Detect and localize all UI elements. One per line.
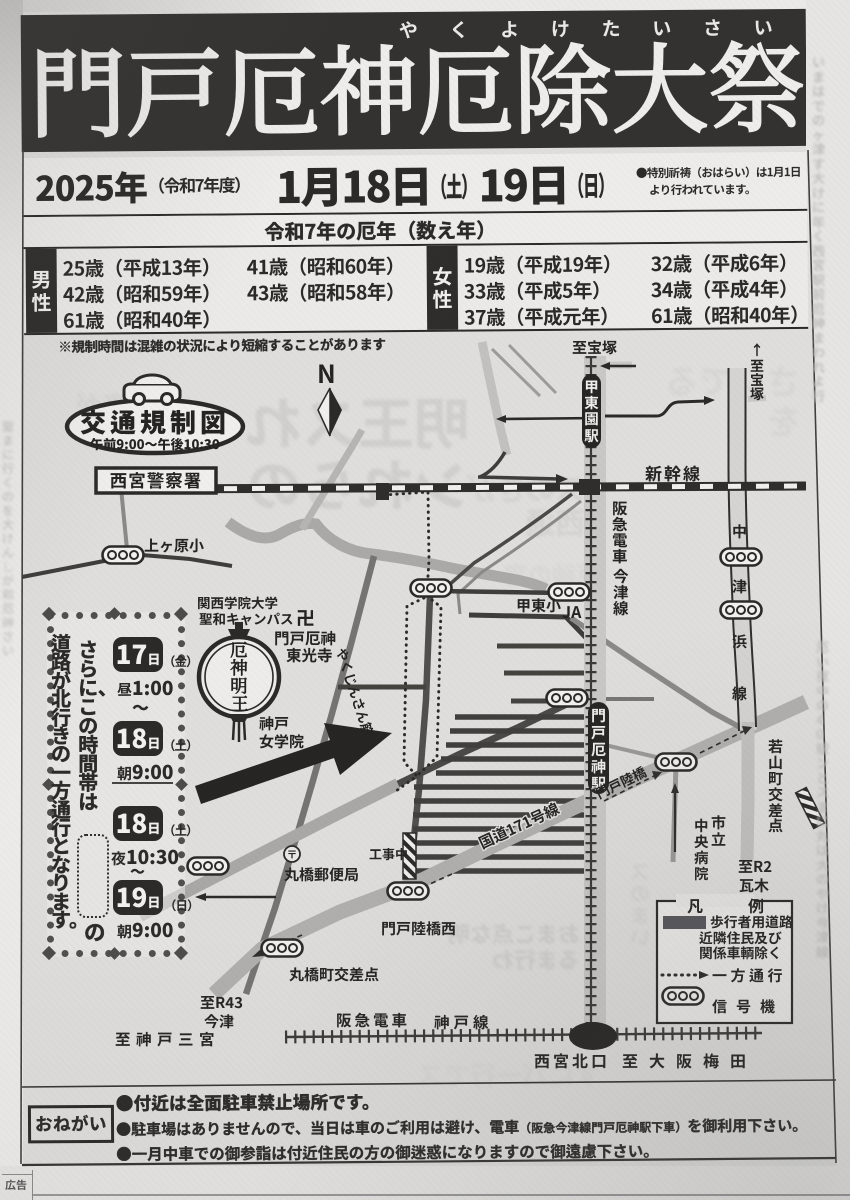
svg-text:至R2: 至R2 xyxy=(738,856,772,877)
svg-text:塚: 塚 xyxy=(750,384,764,404)
svg-text:JA: JA xyxy=(562,599,582,623)
svg-text:丸橋郵便局: 丸橋郵便局 xyxy=(284,864,359,885)
svg-text:至宝塚: 至宝塚 xyxy=(572,337,617,358)
svg-text:女学院: 女学院 xyxy=(259,731,304,752)
svg-text:関係車輌除く: 関係車輌除く xyxy=(699,942,782,962)
svg-text:〒: 〒 xyxy=(287,847,298,863)
svg-text:工事中: 工事中 xyxy=(369,844,408,863)
svg-text:一方通行: 一方通行 xyxy=(712,965,786,986)
svg-text:新幹線: 新幹線 xyxy=(645,460,702,485)
svg-text:午前9:00～午後10:30: 午前9:00～午後10:30 xyxy=(90,434,220,453)
svg-text:点: 点 xyxy=(768,815,783,836)
svg-text:線: 線 xyxy=(732,683,747,704)
svg-text:線: 線 xyxy=(613,597,629,619)
svg-text:丸橋町交差点: 丸橋町交差点 xyxy=(289,964,379,985)
svg-text:門戸陸橋西: 門戸陸橋西 xyxy=(381,918,456,939)
svg-text:東光寺: 東光寺 xyxy=(286,644,333,666)
svg-text:院: 院 xyxy=(694,863,709,884)
svg-text:聖和キャンパス: 聖和キャンパス xyxy=(199,608,294,628)
svg-text:至R43: 至R43 xyxy=(200,992,243,1013)
svg-text:中: 中 xyxy=(732,521,747,542)
svg-text:阪急電車: 阪急電車 xyxy=(336,1009,410,1031)
svg-text:甲東小: 甲東小 xyxy=(516,595,561,616)
svg-text:西宮警察署: 西宮警察署 xyxy=(110,468,203,493)
svg-text:車: 車 xyxy=(612,545,628,567)
svg-text:津: 津 xyxy=(732,576,747,597)
svg-text:N: N xyxy=(317,355,336,391)
svg-text:信号機: 信号機 xyxy=(712,996,784,1017)
svg-text:立: 立 xyxy=(711,829,726,850)
svg-text:凡: 凡 xyxy=(687,893,703,917)
svg-text:上ヶ原小: 上ヶ原小 xyxy=(144,535,204,556)
svg-text:神戸線: 神戸線 xyxy=(434,1011,493,1033)
svg-text:至神戸三宮: 至神戸三宮 xyxy=(115,1028,220,1050)
svg-text:浜: 浜 xyxy=(732,631,747,652)
svg-text:駅: 駅 xyxy=(584,425,599,446)
svg-text:王: 王 xyxy=(231,691,249,716)
